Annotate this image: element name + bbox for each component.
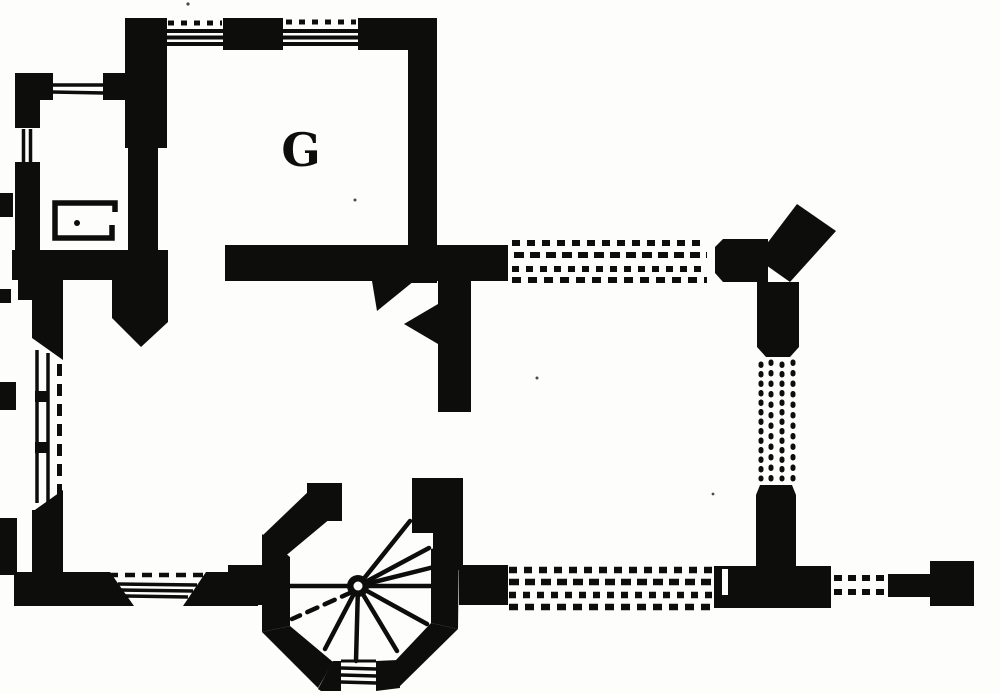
edge-wall-fragment (0, 382, 16, 410)
hearth-mark (74, 220, 80, 226)
stair-tread-line (356, 586, 358, 661)
east-gate-fragment (888, 561, 974, 606)
turret-south-window (341, 661, 376, 683)
g-west-wall (128, 146, 158, 252)
great-chamber: G (125, 18, 508, 412)
se-pier-rebate-notch (722, 569, 728, 595)
speck (536, 377, 539, 380)
nw-west-window (24, 129, 31, 162)
turret-southeast-wall (396, 623, 458, 688)
nw-top-right-wall-block (103, 73, 127, 100)
stair-newel-eye (354, 582, 363, 591)
nw-south-wall (12, 250, 168, 280)
g-north-window-west (167, 23, 223, 44)
gate-block (930, 561, 974, 606)
g-northwest-corner-wall (125, 18, 167, 148)
se-pier-base (714, 566, 831, 608)
g-northeast-corner-wall (358, 18, 437, 50)
gate-stem-wall (888, 574, 932, 597)
east-partition-wall (438, 280, 471, 412)
dotted-wall-north-east (512, 243, 707, 280)
floor-plan-figure: G (0, 0, 1000, 693)
window-hatch-line (121, 590, 193, 591)
stair-turret (228, 478, 508, 691)
window-hatch-line (341, 675, 376, 676)
partition-wall-stub (112, 280, 168, 347)
window-hatch-line (124, 596, 188, 597)
turret-northeast-stub (412, 478, 463, 533)
hearth-outline (55, 203, 115, 238)
corner-door-jamb-lower (404, 304, 438, 344)
nw-north-window (52, 85, 104, 93)
window-hatch-line (118, 584, 197, 585)
southeast-pier (714, 485, 831, 608)
window-hatch-line (341, 682, 376, 683)
hall-west-wall-upper (32, 280, 63, 338)
hall-south-wall-west (14, 572, 110, 606)
conjectural-walls (509, 243, 887, 607)
window-hatch-line (341, 668, 376, 669)
speck (186, 2, 189, 5)
dotted-wall-south (509, 570, 713, 607)
window-hatch-line (52, 92, 104, 93)
turret-southwest-wall (262, 626, 333, 688)
g-south-wall (225, 245, 508, 281)
room-label-g: G (281, 123, 320, 177)
northeast-pier (715, 204, 836, 357)
speck (354, 199, 357, 202)
edge-wall-fragment (0, 289, 11, 303)
turret-northwest-stub (307, 483, 342, 521)
speck (712, 493, 715, 496)
floor-plan-drawing: G (0, 0, 1000, 693)
stair-tread-line (358, 548, 429, 586)
dotted-wall-east (761, 362, 793, 481)
hall-west-long-window (35, 344, 60, 510)
west-hall (14, 280, 258, 606)
edge-wall-fragment (0, 518, 17, 575)
hearth-border (55, 203, 115, 238)
g-north-wall-pier (223, 18, 283, 50)
se-pier-north-stub (756, 485, 796, 566)
edge-wall-fragment (0, 193, 13, 217)
ne-pier-south-stub (757, 282, 799, 357)
turret-northeast-arm (433, 533, 463, 570)
turret-east-arm (459, 565, 508, 605)
spiral-stair (289, 521, 435, 661)
window-bar-block (35, 442, 47, 453)
nw-west-wall-lower (15, 162, 40, 252)
g-north-window-east (283, 22, 358, 44)
corner-door-jamb-upper (372, 281, 414, 311)
nw-west-wall-upper (15, 73, 40, 128)
hall-west-wall-lower (32, 510, 63, 576)
dotted-wall-southeast-link (834, 578, 887, 592)
window-bar-block (35, 391, 47, 402)
